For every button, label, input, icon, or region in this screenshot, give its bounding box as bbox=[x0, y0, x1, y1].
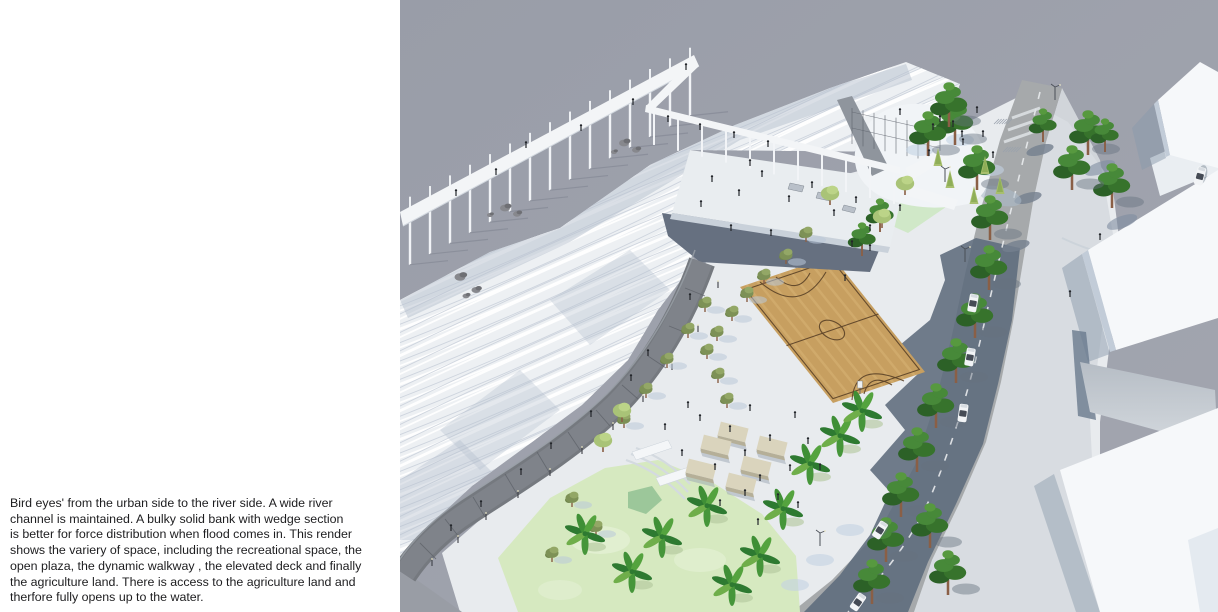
caption-line: shows the variery of space, including th… bbox=[10, 543, 362, 559]
architectural-render bbox=[400, 0, 1218, 612]
caption-text: Bird eyes' from the urban side to the ri… bbox=[10, 496, 362, 606]
portfolio-page: Bird eyes' from the urban side to the ri… bbox=[0, 0, 1218, 612]
backboard bbox=[858, 381, 863, 388]
caption-line: Bird eyes' from the urban side to the ri… bbox=[10, 496, 362, 512]
caption-line: therfore fully opens up to the water. bbox=[10, 590, 362, 606]
caption-line: the agriculture land. There is access to… bbox=[10, 575, 362, 591]
caption-line: is better for force distribution when fl… bbox=[10, 527, 362, 543]
caption-line: channel is maintained. A bulky solid ban… bbox=[10, 512, 362, 528]
render-scene bbox=[400, 0, 1218, 612]
caption-line: open plaza, the dynamic walkway , the el… bbox=[10, 559, 362, 575]
